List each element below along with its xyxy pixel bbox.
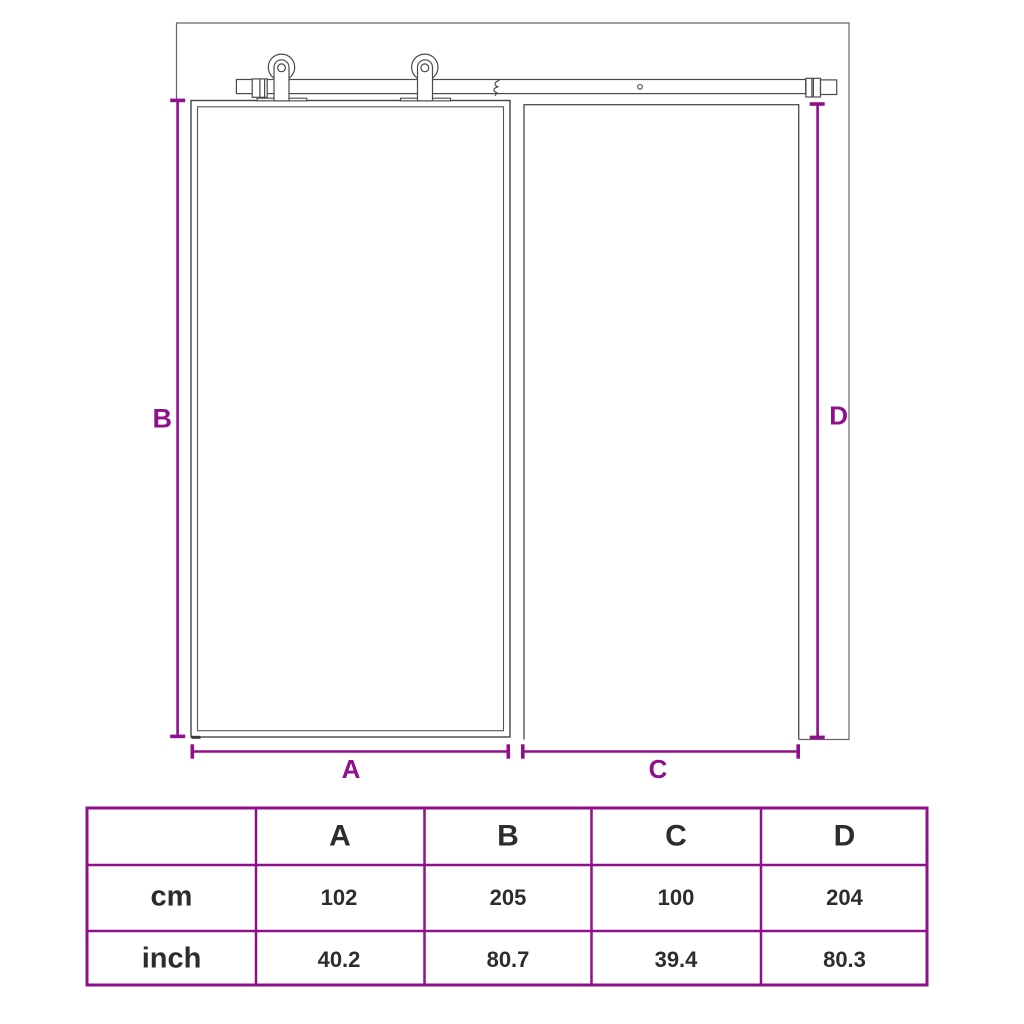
svg-text:205: 205 <box>490 885 527 910</box>
svg-text:inch: inch <box>142 943 202 975</box>
svg-text:100: 100 <box>658 885 695 910</box>
svg-text:80.3: 80.3 <box>823 947 866 972</box>
svg-text:204: 204 <box>826 885 863 910</box>
svg-text:D: D <box>829 401 848 431</box>
svg-text:A: A <box>342 754 361 784</box>
svg-text:102: 102 <box>321 885 358 910</box>
svg-text:80.7: 80.7 <box>487 947 530 972</box>
svg-text:C: C <box>649 754 668 784</box>
svg-text:C: C <box>665 820 687 853</box>
svg-text:39.4: 39.4 <box>655 947 699 972</box>
svg-text:40.2: 40.2 <box>318 947 361 972</box>
svg-text:D: D <box>834 820 856 853</box>
svg-text:B: B <box>153 404 173 434</box>
svg-text:cm: cm <box>151 881 193 913</box>
svg-text:A: A <box>329 820 351 853</box>
svg-text:B: B <box>497 820 519 853</box>
